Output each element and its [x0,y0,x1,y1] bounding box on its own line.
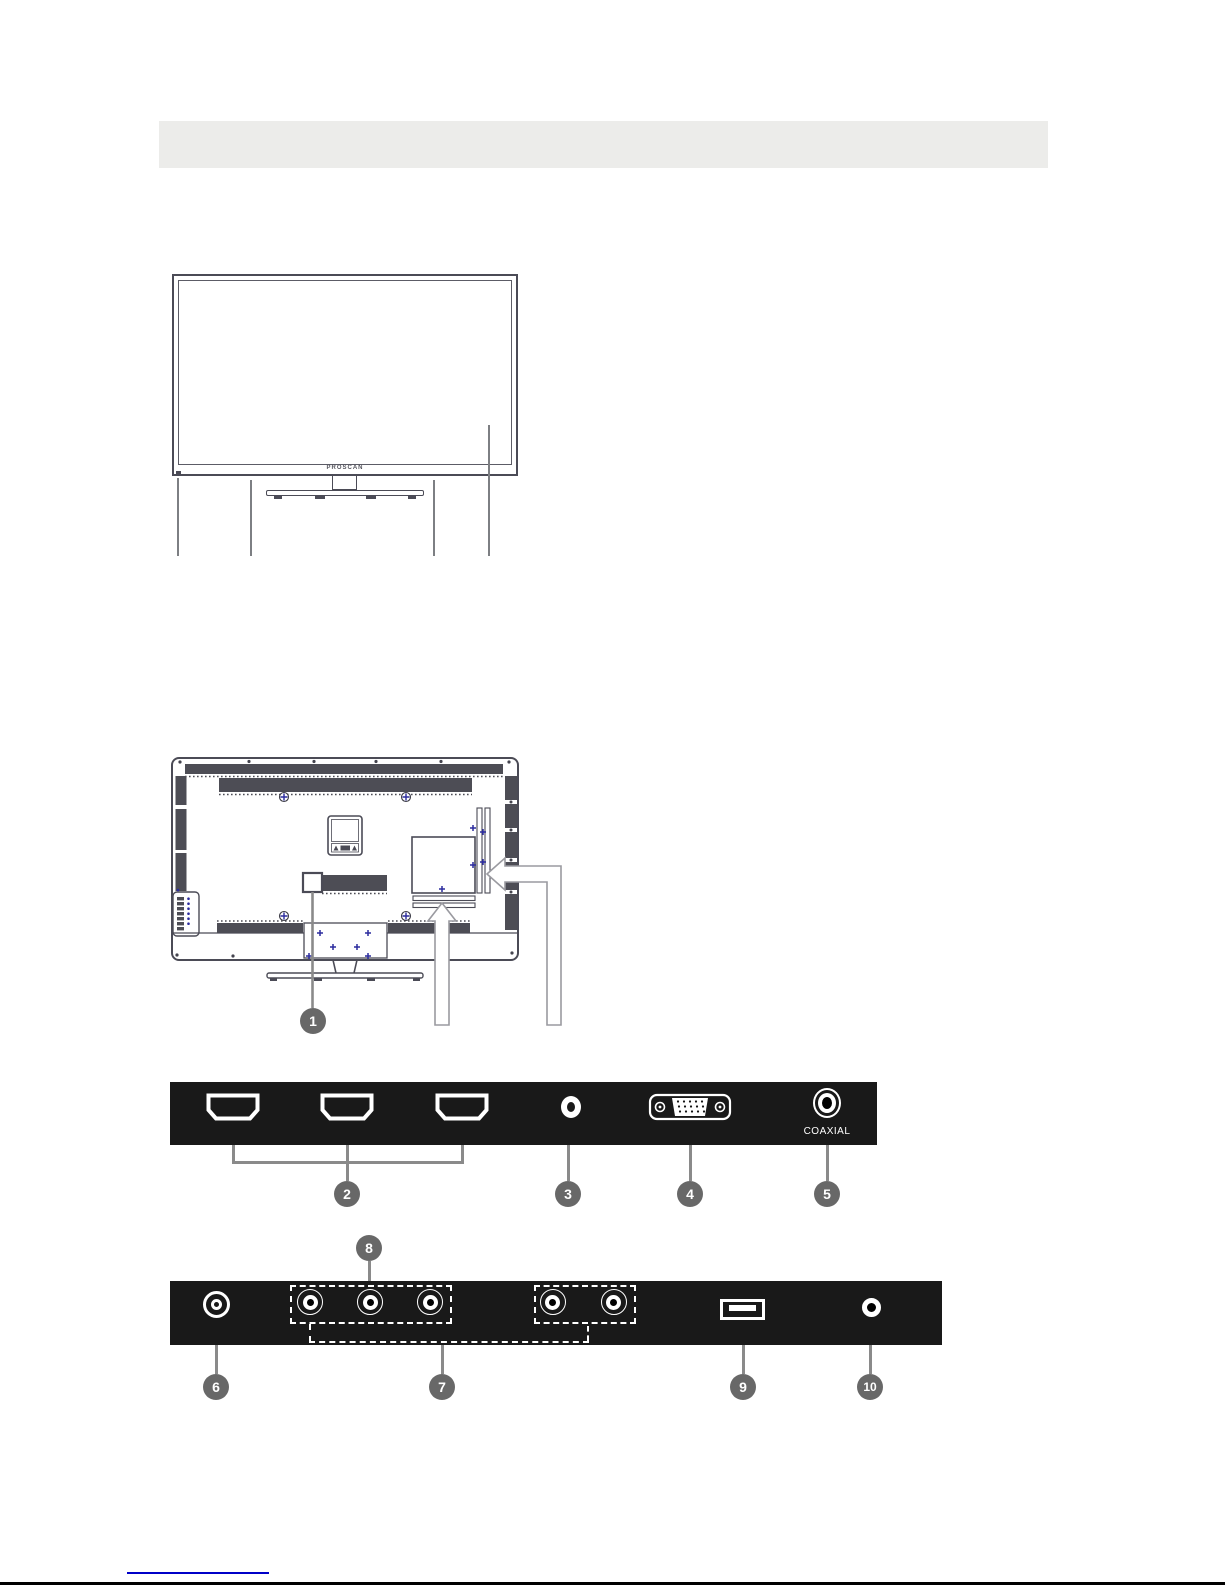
callout-3-leader [567,1145,570,1181]
callout-4: 4 [677,1181,703,1207]
tv-rear-view [160,740,580,1052]
footer-link-underline[interactable] [127,1572,269,1574]
rca-jack-4 [540,1289,566,1315]
io-panel-bottom [170,1281,942,1345]
rear-stand [267,960,423,981]
tv-front-screen [178,280,512,465]
hdmi-port-1 [205,1091,261,1123]
callout-7: 7 [429,1374,455,1400]
coaxial-label: COAXIAL [787,1126,867,1137]
callout-8-leader [368,1261,371,1281]
tv-front-view: PROSCAN [172,274,518,476]
callout-9-leader [742,1345,745,1374]
stand-foot [315,496,325,499]
rating-label [328,816,362,855]
callout-7-leader [441,1345,444,1374]
stand-foot [408,496,416,499]
manual-page: PROSCAN [0,0,1225,1585]
callout-6: 6 [203,1374,229,1400]
vesa-mount [304,923,387,958]
coaxial-port-pin [818,1093,836,1113]
callout-8: 8 [356,1235,382,1261]
rca-jack-5 [601,1289,627,1315]
av-input-jack [561,1096,581,1118]
rca-jack-1 [297,1289,323,1315]
brand-logo: PROSCAN [174,465,516,473]
hdmi-port-3 [434,1091,490,1123]
power-input [303,873,322,892]
callout-2: 2 [334,1181,360,1207]
callout-5-leader [826,1145,829,1181]
callout-6-leader [215,1345,218,1374]
callout-2-leader [346,1145,349,1181]
front-leader-line [433,480,435,556]
rca-group-bracket [309,1341,589,1343]
antenna-port-pin [211,1299,222,1310]
front-leader-line [488,425,490,556]
callout-3: 3 [555,1181,581,1207]
side-connector-ladder [173,889,199,936]
callout-10: 10 [857,1374,883,1400]
hdmi-port-2 [319,1091,375,1123]
rca-group-bracket [309,1324,311,1342]
callout-4-leader [689,1145,692,1181]
front-leader-line [177,478,179,556]
vga-port [648,1088,732,1126]
front-leader-line [250,480,252,556]
front-stand-neck [332,476,357,490]
zoom-arrow-up [428,903,456,1025]
headphone-jack [862,1298,881,1317]
rca-group-bracket [587,1326,589,1341]
callout-9: 9 [730,1374,756,1400]
header-bar [159,121,1048,168]
power-indicator-led [176,471,181,475]
callout-1: 1 [300,1008,326,1034]
callout-5: 5 [814,1181,840,1207]
front-stand-base [266,490,424,496]
rca-jack-2 [357,1289,383,1315]
stand-foot [366,496,376,499]
io-panel-top: COAXIAL [170,1082,877,1145]
rca-jack-3 [417,1289,443,1315]
stand-foot [274,496,282,499]
antenna-port [203,1291,230,1318]
usb-port-tongue [729,1305,756,1311]
callout-10-leader [869,1345,872,1374]
